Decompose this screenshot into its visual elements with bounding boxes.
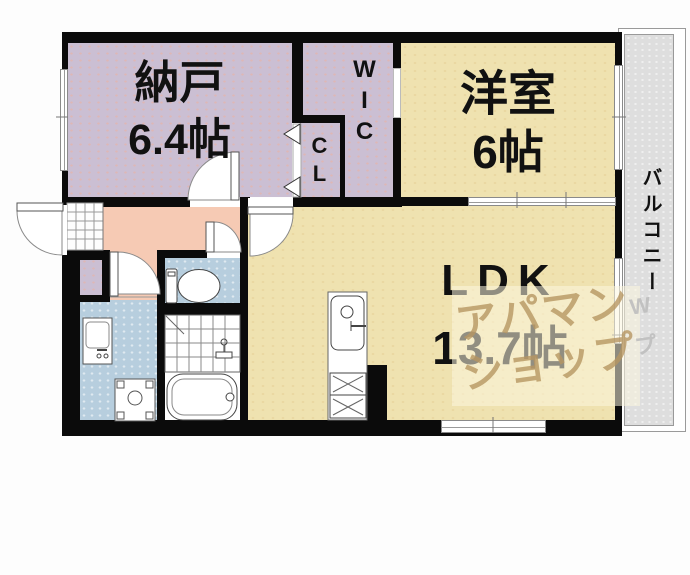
bathroom-tiles [165,315,240,372]
genkan-tiles [67,203,103,250]
toilet-icon [166,269,220,303]
room-wic-label: WIC [350,52,378,152]
ldk-door [248,198,293,256]
entrance-door [17,203,67,255]
watermark-side-w: W [622,284,657,328]
bathtub-icon [167,374,237,420]
toilet-door [206,222,241,258]
floor-plan: 納戸 6.4帖 WIC CL 洋室 6帖 LDK 13.7帖 バルコニー アパマ… [0,0,690,575]
room-nando-label: 納戸 [67,46,292,111]
room-yoshitsu-label: 洋室 [400,54,616,124]
vanity-sink-icon [83,318,112,364]
room-nando-size: 6.4帖 [67,105,292,167]
room-cl-label: CL [306,133,332,189]
kitchen-sink-icon [331,296,366,350]
washing-machine-icon [115,379,155,421]
kitchen-stove-icon [330,373,366,418]
washroom-door [110,252,160,297]
room-yoshitsu-size: 6帖 [400,116,616,182]
watermark-side-pu: プ [628,324,663,368]
bath-faucet-icon [216,339,232,358]
